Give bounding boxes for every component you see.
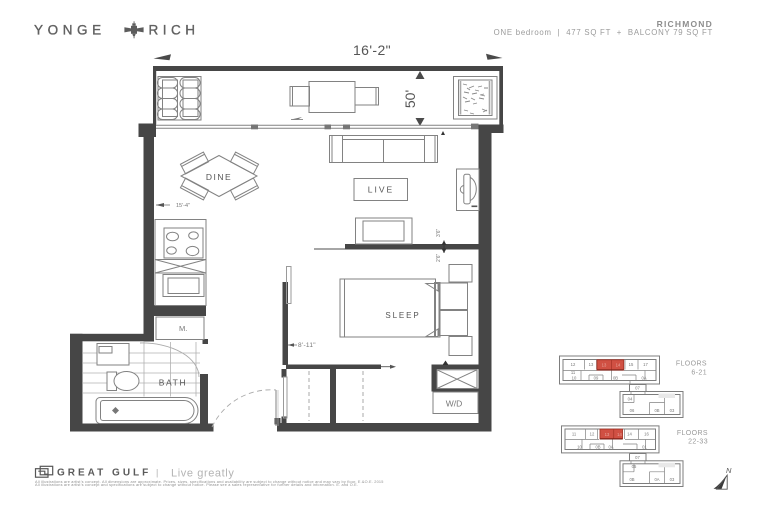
svg-text:12: 12 bbox=[571, 362, 576, 367]
svg-text:LIVE: LIVE bbox=[368, 185, 394, 195]
svg-text:04: 04 bbox=[628, 397, 633, 402]
svg-text:All illustrations are artist's: All illustrations are artist's concept a… bbox=[35, 483, 358, 487]
svg-text:0B: 0B bbox=[613, 376, 618, 381]
svg-text:11: 11 bbox=[571, 370, 576, 375]
svg-text:11: 11 bbox=[572, 432, 577, 437]
svg-text:RICH: RICH bbox=[149, 23, 200, 38]
svg-text:ONE bedroom | 477 SQ FT +: ONE bedroom | 477 SQ FT + BALCONY 79 SQ … bbox=[494, 28, 713, 37]
svg-text:14: 14 bbox=[627, 432, 632, 437]
svg-text:13: 13 bbox=[602, 363, 607, 368]
svg-text:0B: 0B bbox=[654, 408, 659, 413]
svg-text:13: 13 bbox=[589, 362, 594, 367]
svg-text:0B: 0B bbox=[629, 477, 634, 482]
svg-text:6-21: 6-21 bbox=[691, 370, 707, 377]
svg-text:07: 07 bbox=[635, 386, 640, 391]
svg-text:09: 09 bbox=[594, 376, 599, 381]
svg-text:16'-2": 16'-2" bbox=[353, 42, 391, 58]
svg-text:W/D: W/D bbox=[446, 399, 463, 409]
svg-text:N: N bbox=[726, 466, 732, 475]
svg-text:2'6": 2'6" bbox=[436, 253, 442, 262]
svg-text:YONGE: YONGE bbox=[34, 23, 106, 38]
svg-text:06: 06 bbox=[630, 408, 635, 413]
svg-text:50': 50' bbox=[402, 90, 418, 108]
svg-text:8'-11": 8'-11" bbox=[298, 342, 316, 349]
svg-text:05: 05 bbox=[632, 464, 637, 469]
svg-text:16: 16 bbox=[644, 432, 649, 437]
svg-text:15'-4": 15'-4" bbox=[176, 203, 190, 209]
svg-text:SLEEP: SLEEP bbox=[385, 311, 420, 320]
svg-text:FLOORS: FLOORS bbox=[676, 361, 707, 368]
svg-text:GREAT GULF: GREAT GULF bbox=[57, 468, 151, 479]
svg-text:|: | bbox=[156, 468, 158, 478]
svg-text:3'6": 3'6" bbox=[436, 228, 442, 237]
svg-text:12: 12 bbox=[590, 432, 595, 437]
svg-text:0B: 0B bbox=[595, 445, 600, 450]
svg-text:0A: 0A bbox=[641, 376, 646, 381]
svg-text:10: 10 bbox=[572, 376, 577, 381]
svg-text:13: 13 bbox=[605, 432, 610, 437]
svg-text:22-33: 22-33 bbox=[688, 439, 708, 446]
svg-text:FLOORS: FLOORS bbox=[677, 430, 708, 437]
svg-text:01: 01 bbox=[642, 445, 647, 450]
svg-text:07: 07 bbox=[635, 455, 640, 460]
svg-text:0A: 0A bbox=[608, 445, 613, 450]
svg-text:BATH: BATH bbox=[159, 378, 187, 388]
svg-text:DINE: DINE bbox=[206, 172, 232, 182]
svg-text:14: 14 bbox=[617, 432, 622, 437]
svg-text:Live greatly: Live greatly bbox=[171, 468, 234, 480]
svg-text:17: 17 bbox=[643, 362, 648, 367]
svg-text:03: 03 bbox=[670, 477, 675, 482]
svg-text:14: 14 bbox=[616, 363, 621, 368]
svg-text:M.: M. bbox=[179, 324, 187, 333]
svg-text:03: 03 bbox=[670, 408, 675, 413]
svg-text:0A: 0A bbox=[654, 477, 659, 482]
svg-text:15: 15 bbox=[629, 362, 634, 367]
svg-text:10: 10 bbox=[577, 445, 582, 450]
